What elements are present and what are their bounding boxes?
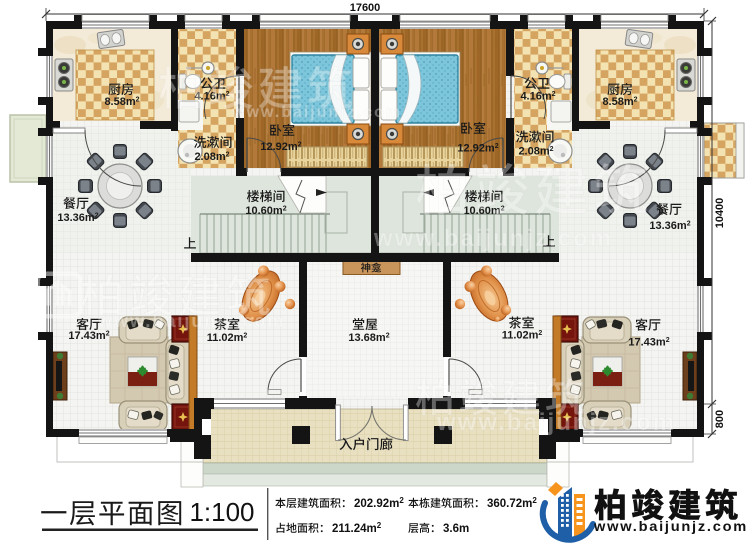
svg-text:10400: 10400 (714, 198, 726, 229)
svg-text:202.92m2: 202.92m2 (354, 496, 404, 510)
svg-text:17.43m2: 17.43m2 (628, 337, 669, 349)
svg-text:2.08m2: 2.08m2 (518, 146, 553, 158)
svg-text:12.92m2: 12.92m2 (260, 141, 301, 153)
svg-text:1:100: 1:100 (189, 497, 254, 527)
svg-text:www.baijunjz.com: www.baijunjz.com (97, 311, 285, 331)
svg-text:2.08m2: 2.08m2 (194, 151, 229, 163)
svg-text:10.60m2: 10.60m2 (245, 205, 286, 217)
svg-text:8.58m2: 8.58m2 (104, 96, 139, 108)
svg-text:360.72m2: 360.72m2 (487, 496, 537, 510)
svg-text:800: 800 (714, 410, 726, 428)
svg-text:www.baijunjz.com: www.baijunjz.com (436, 409, 676, 436)
svg-text:www.baijunjz.com: www.baijunjz.com (593, 519, 748, 534)
svg-text:11.02m2: 11.02m2 (502, 330, 543, 342)
svg-text:12.92m2: 12.92m2 (457, 143, 498, 155)
svg-text:8.58m2: 8.58m2 (602, 96, 637, 108)
svg-text:13.36m2: 13.36m2 (57, 212, 98, 224)
svg-text:www.baijunjz.com: www.baijunjz.com (231, 104, 402, 121)
svg-text:17.43m2: 17.43m2 (68, 330, 109, 342)
svg-text:13.36m2: 13.36m2 (649, 220, 690, 232)
svg-text:11.02m2: 11.02m2 (207, 332, 248, 344)
svg-text:13.68m2: 13.68m2 (348, 332, 389, 344)
svg-text:3.6m: 3.6m (443, 523, 469, 535)
svg-text:www.baijunjz.com: www.baijunjz.com (373, 225, 613, 252)
svg-text:211.24m2: 211.24m2 (332, 521, 382, 535)
svg-text:4.16m2: 4.16m2 (520, 91, 555, 103)
svg-text:17600: 17600 (350, 2, 381, 14)
